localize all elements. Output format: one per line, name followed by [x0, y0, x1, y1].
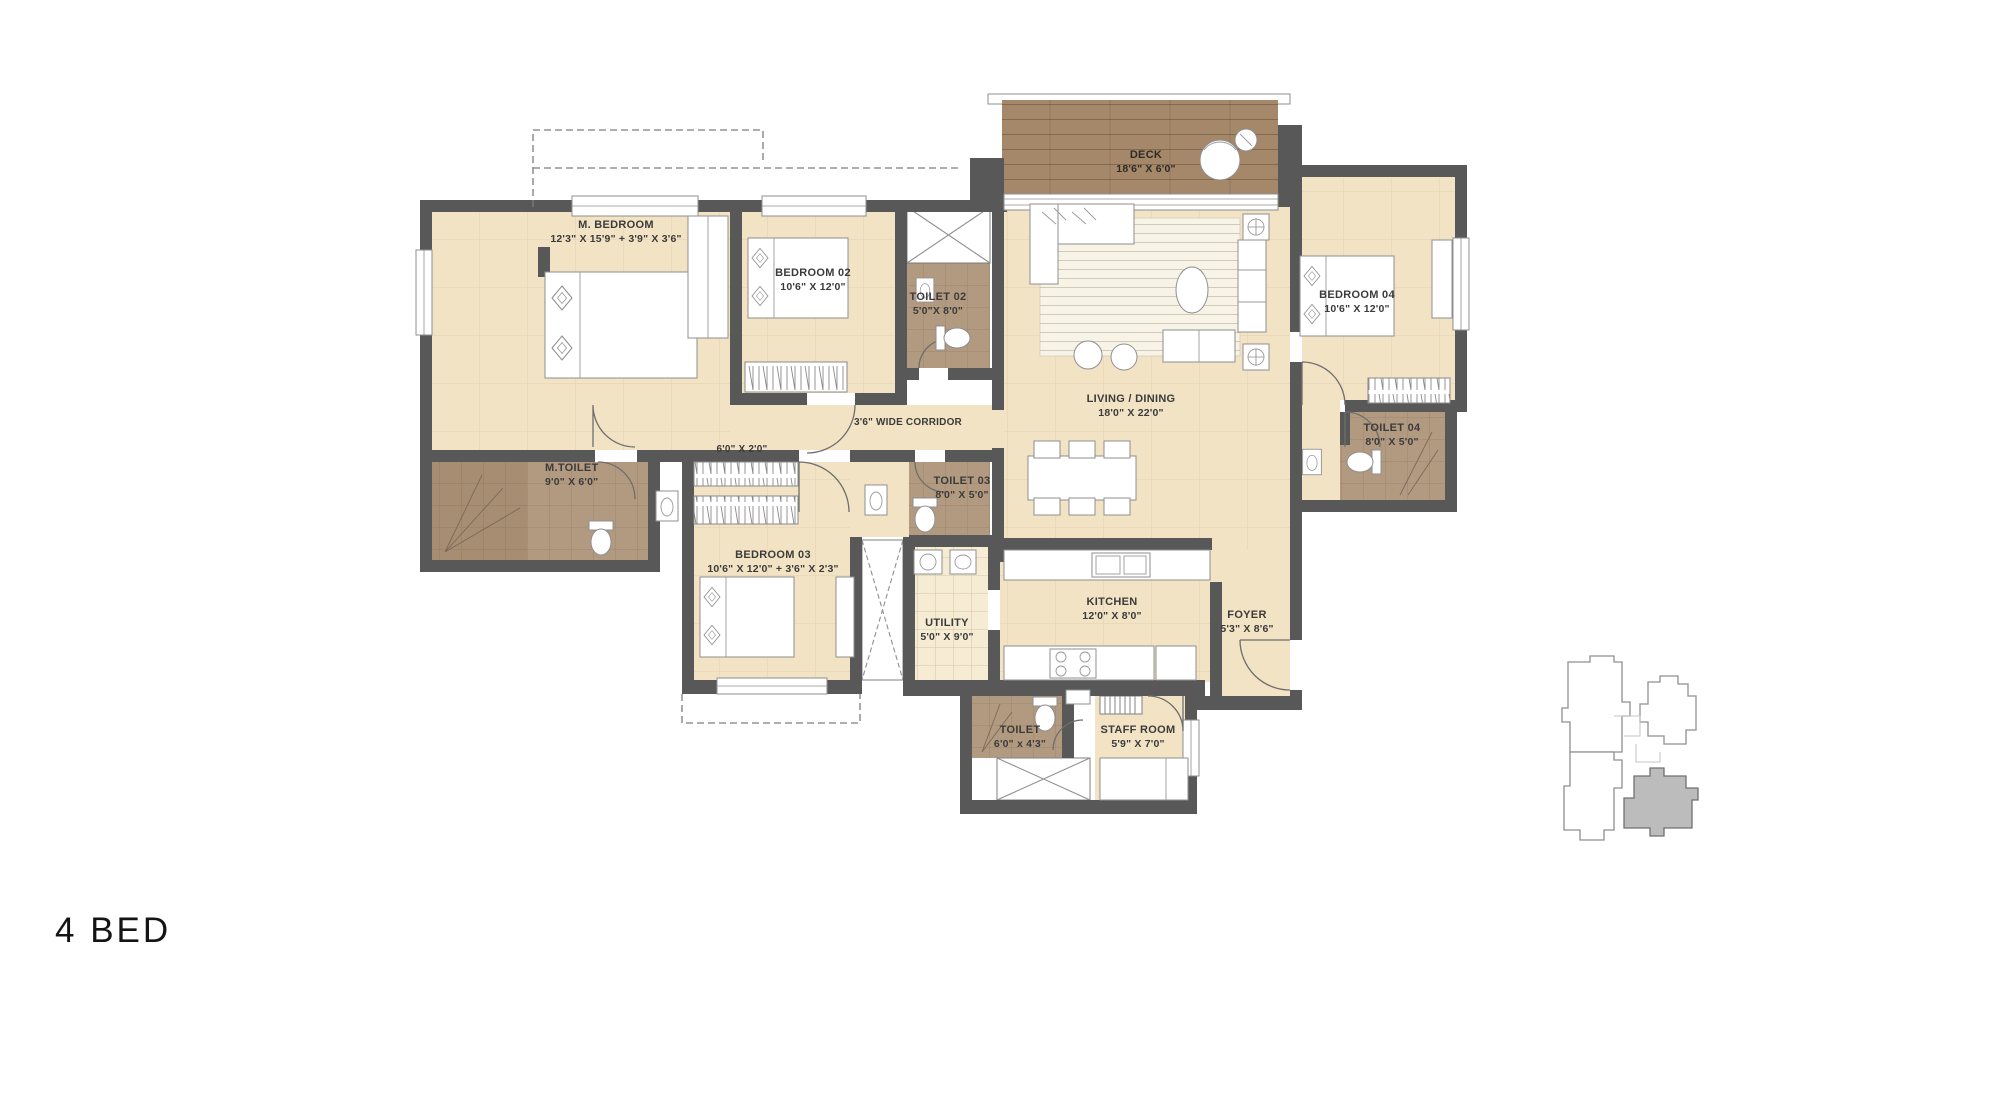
svg-text:9'0" X 6'0": 9'0" X 6'0" — [545, 476, 598, 488]
svg-text:FOYER: FOYER — [1227, 609, 1266, 621]
bedroom-04-wardrobe — [1368, 378, 1450, 403]
open-area-bottom — [682, 694, 860, 723]
window — [572, 196, 698, 216]
bedroom-03-bed — [700, 577, 794, 657]
keyplan-wing-east — [1640, 676, 1696, 744]
tv-console — [1238, 240, 1266, 332]
staff-bed — [1100, 758, 1188, 800]
svg-text:TOILET 04: TOILET 04 — [1364, 422, 1421, 434]
window — [762, 196, 866, 216]
svg-text:10'6" X 12'0" + 3'6" X 2'3": 10'6" X 12'0" + 3'6" X 2'3" — [707, 563, 838, 575]
label-corridor-closet: 6'0" X 2'0" — [717, 444, 768, 455]
svg-text:DECK: DECK — [1130, 149, 1162, 161]
svg-text:18'6" X 6'0": 18'6" X 6'0" — [1116, 163, 1175, 175]
svg-text:STAFF ROOM: STAFF ROOM — [1101, 724, 1176, 736]
kitchen-sink — [1092, 553, 1150, 577]
bedroom-02-wardrobe — [745, 362, 847, 392]
svg-text:LIVING / DINING: LIVING / DINING — [1087, 393, 1176, 405]
svg-text:BEDROOM 03: BEDROOM 03 — [735, 549, 811, 561]
dining-table — [1028, 456, 1136, 500]
coffee-table — [1176, 267, 1208, 313]
svg-text:18'0" X 22'0": 18'0" X 22'0" — [1098, 407, 1163, 419]
svg-text:10'6" X 12'0": 10'6" X 12'0" — [1324, 303, 1389, 315]
svg-text:KITCHEN: KITCHEN — [1087, 596, 1138, 608]
svg-text:8'0" X 5'0": 8'0" X 5'0" — [1365, 436, 1418, 448]
svg-text:10'6" X 12'0": 10'6" X 12'0" — [780, 281, 845, 293]
svg-text:5'9" X 7'0": 5'9" X 7'0" — [1111, 738, 1164, 750]
bedroom-04-dresser — [1432, 240, 1452, 318]
planter — [1243, 344, 1269, 370]
svg-text:M.TOILET: M.TOILET — [545, 462, 599, 474]
staff-room-furniture — [1100, 758, 1188, 800]
svg-text:6'0" x 4'3": 6'0" x 4'3" — [994, 738, 1046, 750]
stove — [1050, 649, 1096, 678]
keyplan-highlighted-unit — [1624, 768, 1698, 836]
svg-text:BEDROOM 04: BEDROOM 04 — [1319, 289, 1395, 301]
svg-text:5'3" X 8'6": 5'3" X 8'6" — [1220, 623, 1273, 635]
bedroom-02-furniture — [745, 238, 848, 392]
m-toilet-wc — [589, 521, 613, 555]
window — [1453, 238, 1469, 330]
svg-text:M. BEDROOM: M. BEDROOM — [578, 219, 654, 231]
svg-text:TOILET 02: TOILET 02 — [910, 291, 967, 303]
sofa-chaise — [1030, 204, 1058, 284]
svg-text:12'0" X 8'0": 12'0" X 8'0" — [1082, 610, 1141, 622]
svg-text:5'0" X 9'0": 5'0" X 9'0" — [920, 631, 973, 643]
toilet-03-wc — [913, 498, 937, 532]
toilet-04-wc — [1347, 450, 1381, 474]
svg-text:5'0"X 8'0": 5'0"X 8'0" — [913, 305, 963, 317]
toilet-03-basin — [865, 485, 887, 515]
m-toilet-basin — [656, 491, 678, 521]
master-bed — [545, 272, 697, 378]
window — [416, 250, 432, 335]
floorplan-page: DECK 18'6" X 6'0" M. BEDROOM 12'3" X 15'… — [0, 0, 2000, 1111]
stool — [1111, 344, 1137, 370]
shaft-duct-lines — [1105, 696, 1135, 714]
svg-text:UTILITY: UTILITY — [925, 617, 969, 629]
keyplan-wing-west — [1564, 752, 1622, 840]
svg-text:TOILET: TOILET — [1000, 724, 1041, 736]
stool — [1074, 341, 1102, 369]
lobby-basin — [1303, 449, 1322, 475]
utility-sink — [950, 550, 976, 574]
label-corridor: 3'6" WIDE CORRIDOR — [854, 417, 963, 428]
key-plan — [1562, 656, 1698, 840]
window — [717, 678, 827, 694]
deck-chair — [1200, 140, 1240, 180]
keyplan-wing-north — [1562, 656, 1630, 752]
corridor-closet — [694, 462, 798, 486]
planter — [1243, 214, 1269, 240]
bedroom-03-dresser — [836, 577, 854, 657]
svg-text:12'3" X 15'9" + 3'9" X 3'6": 12'3" X 15'9" + 3'9" X 3'6" — [550, 233, 681, 245]
svg-text:8'0" X 5'0": 8'0" X 5'0" — [935, 489, 988, 501]
svg-text:BEDROOM 02: BEDROOM 02 — [775, 267, 851, 279]
kitchen-fridge — [1156, 646, 1196, 680]
floorplan-canvas: DECK 18'6" X 6'0" M. BEDROOM 12'3" X 15'… — [0, 0, 2000, 1111]
toilet-02-wc — [936, 326, 970, 350]
shaft-duct — [1100, 696, 1142, 714]
plan-title: 4 BED — [55, 911, 171, 950]
svg-text:TOILET 03: TOILET 03 — [934, 475, 991, 487]
bedroom-03-wardrobe — [694, 496, 798, 524]
staff-toilet-basin — [1066, 690, 1090, 704]
